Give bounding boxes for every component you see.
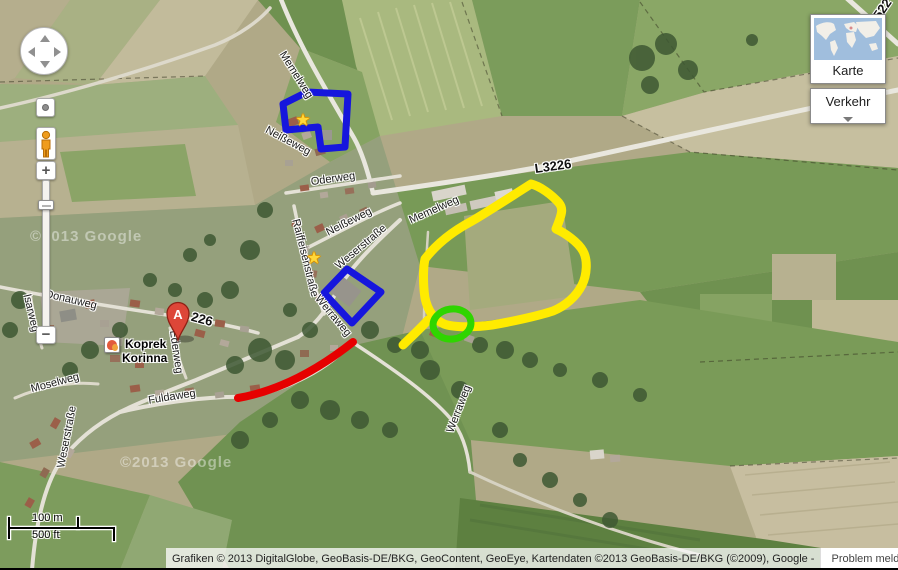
- verkehr-label: Verkehr: [811, 89, 885, 109]
- zoom-out-button[interactable]: −: [36, 326, 56, 344]
- marker-letter: A: [173, 307, 183, 322]
- marker-a-pin[interactable]: A: [163, 300, 197, 344]
- map-type-karte-button[interactable]: Karte: [810, 14, 886, 84]
- karte-label: Karte: [814, 60, 882, 80]
- fields-layer: [0, 0, 898, 570]
- pegman-button[interactable]: [36, 127, 56, 160]
- recenter-button[interactable]: [36, 98, 55, 117]
- recenter-dot-icon: [42, 104, 49, 111]
- pan-left-arrow[interactable]: [28, 47, 35, 57]
- google-maps-viewport: ©2013 Google ©2013 Google MemelwegNeißew…: [0, 0, 898, 570]
- world-map-thumbnail: [814, 18, 882, 60]
- place-photo-icon[interactable]: [104, 337, 120, 353]
- zoom-slider-handle[interactable]: [38, 200, 54, 210]
- attribution-bar: Grafiken © 2013 DigitalGlobe, GeoBasis-D…: [166, 548, 898, 570]
- verkehr-button[interactable]: Verkehr: [810, 88, 886, 124]
- place-name-line1: Koprek: [125, 338, 166, 350]
- pan-right-arrow[interactable]: [54, 47, 61, 57]
- report-problem-link[interactable]: Problem melden: [820, 548, 898, 570]
- chevron-down-icon: [843, 117, 853, 122]
- zoom-in-button[interactable]: +: [36, 161, 56, 180]
- pan-down-arrow[interactable]: [40, 61, 50, 68]
- pegman-icon: [37, 129, 55, 160]
- attribution-text: Grafiken © 2013 DigitalGlobe, GeoBasis-D…: [166, 553, 820, 565]
- pan-control[interactable]: [20, 27, 68, 75]
- satellite-map[interactable]: [0, 0, 898, 570]
- place-name-line2: Korinna: [122, 352, 167, 364]
- pan-up-arrow[interactable]: [40, 35, 50, 42]
